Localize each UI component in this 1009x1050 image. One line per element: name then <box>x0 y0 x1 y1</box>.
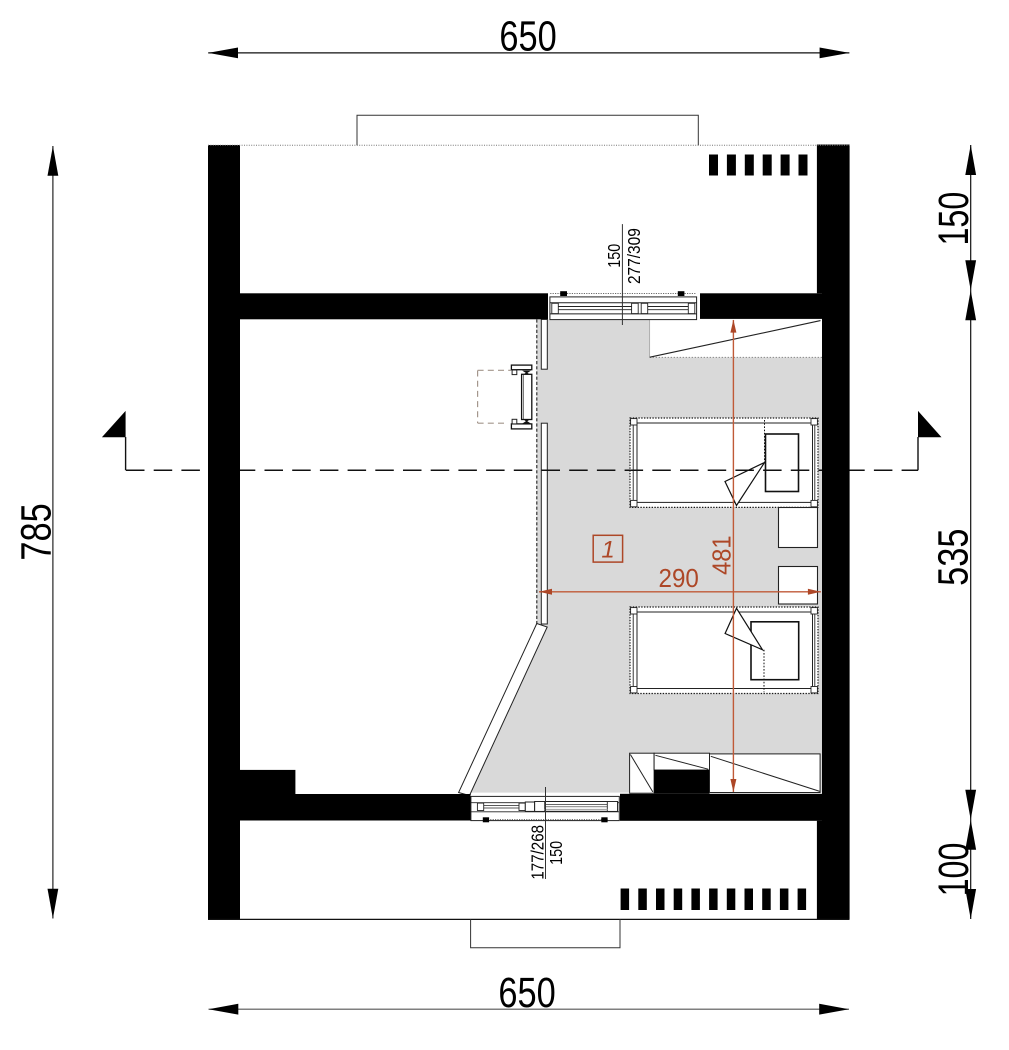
svg-text:1: 1 <box>601 537 614 564</box>
svg-text:150: 150 <box>604 244 624 268</box>
svg-text:277/309: 277/309 <box>624 228 644 284</box>
svg-text:650: 650 <box>499 13 556 60</box>
svg-text:150: 150 <box>930 192 978 246</box>
svg-text:650: 650 <box>498 969 555 1016</box>
svg-text:177/268: 177/268 <box>527 825 548 880</box>
svg-text:535: 535 <box>930 529 977 586</box>
svg-text:785: 785 <box>13 503 60 560</box>
svg-text:150: 150 <box>547 841 567 865</box>
svg-text:100: 100 <box>930 843 978 897</box>
svg-text:481: 481 <box>709 535 737 574</box>
svg-text:290: 290 <box>659 564 699 593</box>
